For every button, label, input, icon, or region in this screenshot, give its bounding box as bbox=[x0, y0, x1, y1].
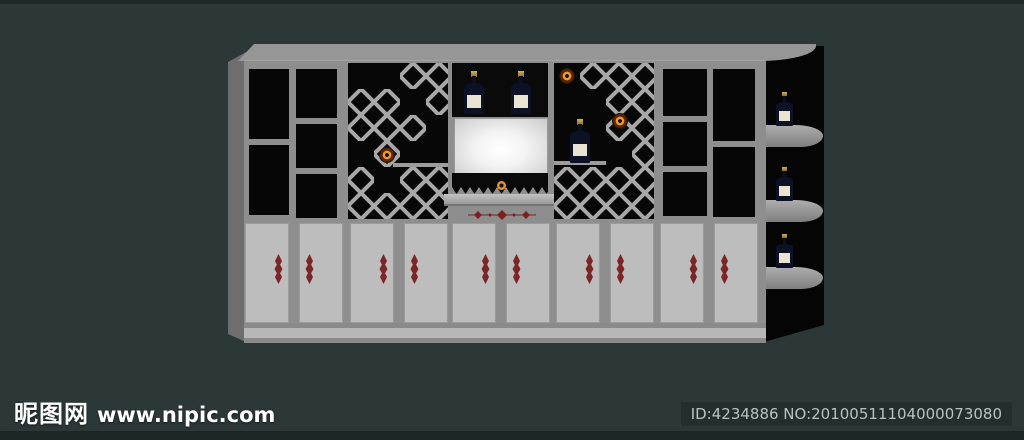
door-handle-ornament bbox=[585, 254, 594, 284]
top-edge-strip bbox=[0, 0, 1024, 4]
curved-shelf bbox=[766, 125, 823, 147]
curved-shelf bbox=[766, 267, 823, 289]
cabinet-door bbox=[660, 223, 704, 323]
cabinet-curved-end-unit bbox=[764, 46, 824, 342]
lattice-pattern bbox=[554, 63, 654, 219]
shelf-niche bbox=[249, 69, 289, 139]
wine-bottle bbox=[776, 234, 793, 268]
door-handle-ornament bbox=[616, 254, 625, 284]
shelf-niche bbox=[296, 174, 337, 218]
cabinet-door bbox=[350, 223, 394, 323]
shelf-niche bbox=[663, 172, 707, 216]
wine-bottle bbox=[511, 71, 531, 114]
cabinet-plinth bbox=[244, 323, 766, 343]
cabinet-door bbox=[610, 223, 654, 323]
site-name: 昵图网 bbox=[14, 394, 89, 429]
lattice-wine-rack-left bbox=[348, 63, 448, 219]
site-watermark: 昵图网 www.nipic.com bbox=[14, 394, 275, 429]
shelf-niche bbox=[296, 69, 337, 118]
door-pair bbox=[350, 223, 448, 323]
curved-shelf bbox=[766, 200, 823, 222]
door-pair bbox=[452, 223, 550, 323]
cabinet-door bbox=[556, 223, 600, 323]
wine-bottle bbox=[464, 71, 484, 114]
lattice-pattern bbox=[348, 63, 448, 219]
door-handle-ornament bbox=[720, 254, 729, 284]
shelf-niche bbox=[296, 124, 337, 168]
door-handle-ornament bbox=[689, 254, 698, 284]
decor-plate bbox=[612, 113, 628, 129]
cabinet-door bbox=[452, 223, 496, 323]
cabinet-door bbox=[506, 223, 550, 323]
site-url: www.nipic.com bbox=[97, 403, 275, 427]
door-handle-ornament bbox=[274, 254, 283, 284]
door-pair bbox=[660, 223, 758, 323]
wine-bottle bbox=[776, 92, 793, 126]
door-handle-ornament bbox=[410, 254, 419, 284]
cabinet-door bbox=[404, 223, 448, 323]
cabinet-top-face bbox=[238, 44, 816, 61]
shelf-niche bbox=[713, 69, 755, 141]
shelf-niche bbox=[663, 69, 707, 116]
shelf-niche bbox=[249, 145, 289, 215]
lattice-wine-rack-right bbox=[554, 63, 654, 219]
bottom-edge-strip bbox=[0, 431, 1024, 440]
door-handle-ornament bbox=[305, 254, 314, 284]
image-id-badge: ID:4234886 NO:20100511104000073080 bbox=[681, 402, 1012, 426]
wine-bottle bbox=[776, 167, 793, 201]
red-carving-motif bbox=[466, 205, 538, 215]
door-handle-ornament bbox=[481, 254, 490, 284]
cabinet-door bbox=[245, 223, 289, 323]
door-pair bbox=[556, 223, 654, 323]
decor-plate bbox=[559, 68, 575, 84]
wine-bottle bbox=[570, 119, 590, 163]
cabinet-door bbox=[714, 223, 758, 323]
shelf-niche bbox=[713, 147, 755, 217]
cabinet-front bbox=[244, 60, 766, 343]
door-handle-ornament bbox=[512, 254, 521, 284]
cabinet-door bbox=[299, 223, 343, 323]
stock-image-canvas: 昵图网 www.nipic.com ID:4234886 NO:20100511… bbox=[0, 0, 1024, 440]
center-white-panel bbox=[454, 118, 548, 175]
valance-medallion bbox=[497, 181, 506, 190]
decor-plate bbox=[379, 147, 395, 163]
door-pair bbox=[245, 223, 343, 323]
plinth-lip bbox=[244, 328, 766, 338]
door-handle-ornament bbox=[379, 254, 388, 284]
shelf-niche bbox=[663, 122, 707, 166]
